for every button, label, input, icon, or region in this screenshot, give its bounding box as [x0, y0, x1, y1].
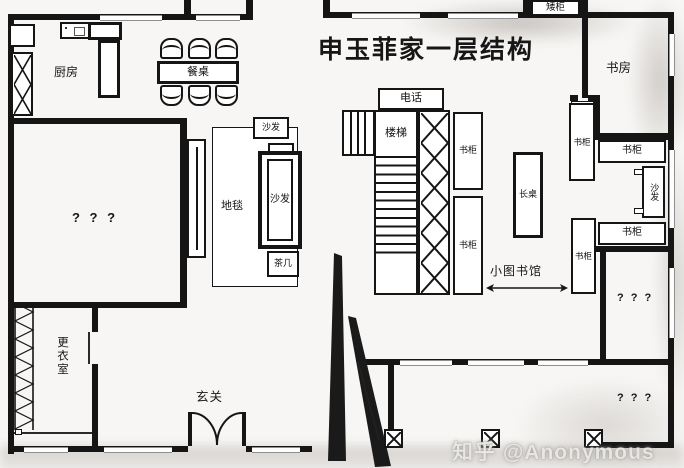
watermark: 知乎 @Anonymous — [452, 436, 655, 466]
hand-drawn-mark — [0, 0, 684, 468]
floor-plan: 申玉菲家一层结构 厨房 餐桌 地毯 沙发 沙发 茶几 — [0, 0, 684, 468]
column-marker — [384, 429, 403, 448]
x-icon — [387, 432, 401, 446]
